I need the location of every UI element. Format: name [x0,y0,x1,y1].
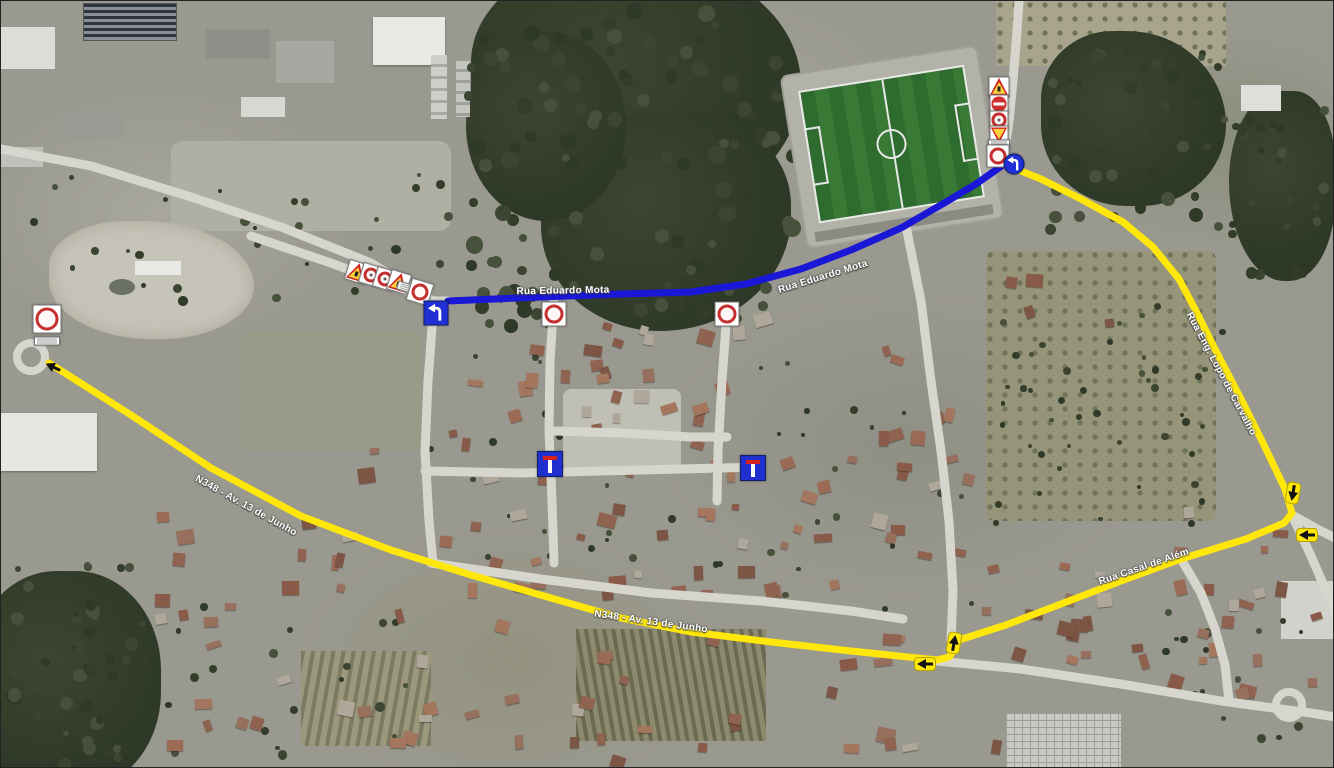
detour-direction-arrow-icon [914,657,936,671]
detour-direction-arrow-icon [44,359,63,375]
detour-direction-arrow-icon [945,631,963,655]
aerial-detour-map: Rua Eduardo MotaRua Eduardo MotaN348 - A… [0,0,1334,768]
direction-arrows-layer [1,1,1333,767]
detour-direction-arrow-icon [1296,528,1318,542]
detour-direction-arrow-icon [1284,481,1302,505]
